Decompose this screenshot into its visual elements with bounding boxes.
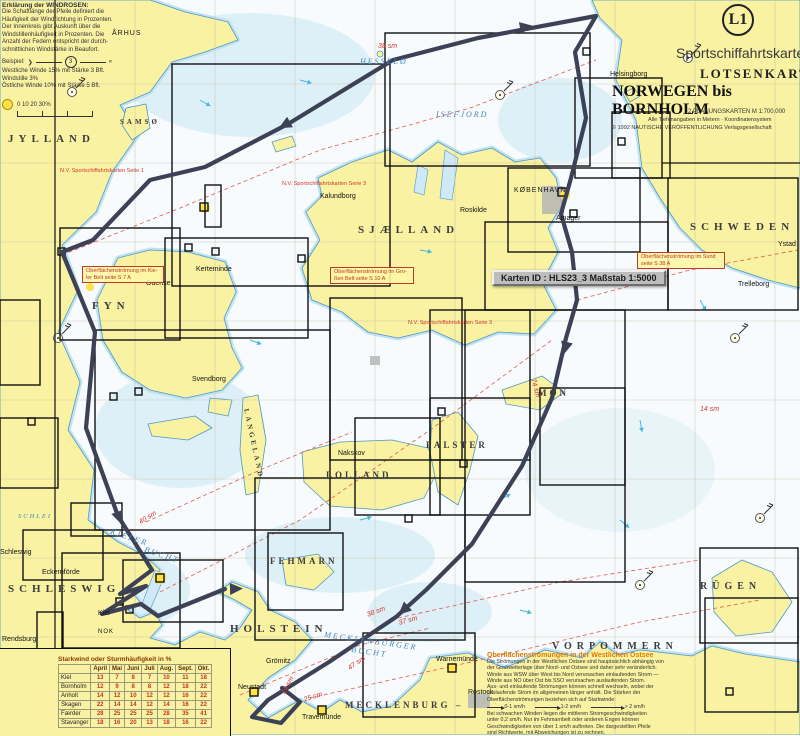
region-label-lolland: LOLLAND [326, 470, 392, 480]
town-label-kerteminde: Kerteminde [196, 266, 232, 273]
currents-note-body1: Die Strömungen in der Westlichen Ostsee … [487, 659, 729, 703]
region-label-moen: MØN [538, 388, 569, 398]
town-label-travemuende: Travemünde [302, 714, 341, 721]
storm-table-header-row: April Mai Juni Juli Aug. Sept. Okt. [59, 665, 212, 674]
currents-note-body2: Bei schwachen Winden liegen die mittlere… [487, 711, 729, 736]
storm-table-col: Aug. [157, 665, 175, 674]
windrose-example-arrow-icon: ❯ [28, 59, 33, 66]
region-label-mecklenburg: MECKLENBURG – [345, 700, 463, 710]
region-label-holstein: HOLSTEIN [230, 623, 327, 635]
windrose-example-shaft [80, 62, 106, 63]
current-speed-arrow-icon [487, 707, 501, 708]
current-speed-label: 1-2 sm/h [561, 704, 582, 710]
town-label-schleswig: Schleswig [0, 549, 32, 556]
series-ref-label: N.V. Sportschiffahrtskarten Seite 1 [60, 168, 144, 174]
town-label-amager: Amager [556, 215, 581, 222]
windrose-legend: Erklärung der WINDROSEN: Die Schaftlänge… [2, 2, 134, 117]
chart-copyright: © 1992 NAUTISCHE VERÖFFENTLICHUNG Verlag… [612, 125, 772, 131]
storm-table-row: Færder 2825 2525 2835 41 [59, 710, 212, 719]
town-label-kiel: Kiel [98, 610, 110, 617]
windrose-legend-body: Die Schaftlänge der Pfeile definiert die… [2, 9, 134, 54]
windrose-legend-title: Erklärung der WINDROSEN: [2, 2, 134, 9]
town-label-nok: NOK [98, 629, 114, 635]
region-label-samsoe: SAMSØ [120, 118, 160, 126]
chart-viewer-screen: { "header": { "badge": "L1", "series": "… [0, 0, 800, 735]
windrose-scale-labels: 0 10 20 30% [17, 102, 51, 108]
chart-product-name: LOTSENKARTEN [700, 66, 800, 82]
town-label-nakskov: Nakskov [338, 450, 365, 457]
storm-table-col: Okt. [195, 665, 212, 674]
distance-label: 38 sm [378, 43, 397, 50]
storm-table-col: Mai [110, 665, 125, 674]
chart-id-tooltip: Karten ID : HLS23_3 Maßstab 1:5000 [492, 270, 666, 286]
chart-subtitle-2: Alle Tiefenangaben in Metern · Koordinat… [648, 117, 772, 123]
water-label-isefjord: ISEFJORD [436, 110, 488, 119]
surface-currents-note: Oberflächenströmungen in der Westlichen … [487, 652, 729, 736]
region-label-sjaelland: SJÆLLAND [358, 224, 459, 236]
storm-table-col: Sept. [176, 665, 196, 674]
town-label-ystad: Ystad [778, 241, 796, 248]
region-label-schleswig: SCHLESWIG – [8, 583, 139, 595]
windrose-scale-circle-icon [2, 99, 13, 110]
current-note-kieler-belt: Oberflächenströmung im Kie- ler Belt sei… [82, 266, 164, 283]
town-label-trelleborg: Trelleborg [738, 281, 769, 288]
windrose-example-shaft [36, 62, 62, 63]
chart-series-name: Sportschiffahrtskarten [676, 45, 800, 61]
town-label-svendborg: Svendborg [192, 376, 226, 383]
windrose-example-feathers-icon: « [109, 59, 112, 65]
region-label-vorpommern: VORPOMMERN [552, 641, 678, 652]
windrose-legend-examples: Westliche Winde 15% mit Stärke 3 Bft. Wi… [2, 68, 134, 91]
storm-table-title: Starkwind oder Sturmhäufigkeit in % [58, 656, 212, 663]
storm-table-row: Anholt 1412 1012 1216 22 [59, 692, 212, 701]
town-label-koebenhavn: KØBENHAVN [514, 187, 566, 194]
storm-table-col: April [91, 665, 110, 674]
current-speed-arrow-icon [535, 707, 557, 708]
windrose-scale-ruler [17, 111, 93, 117]
storm-table-row: Bornholm 129 88 1218 22 [59, 683, 212, 692]
region-label-jylland: JYLLAND [8, 133, 95, 145]
storm-table-col: Juni [125, 665, 142, 674]
windrose-example-circle: 3 [65, 56, 77, 68]
distance-label: 14 sm [700, 406, 719, 413]
current-speed-label: 0-1 sm/h [504, 704, 525, 710]
region-label-fehmarn: FEHMARN [270, 556, 338, 566]
town-label-neustadt: Neustadt [238, 684, 266, 691]
series-ref-label: N.V. Sportschiffahrtskarten Serie 3 [408, 320, 492, 326]
town-label-groemitz: Grömitz [266, 658, 291, 665]
storm-table-corner [59, 665, 91, 674]
current-speed-arrow-icon [591, 707, 621, 708]
storm-table-row: Skagen 2214 1412 1416 22 [59, 701, 212, 710]
region-label-ruegen: RÜGEN [700, 581, 761, 592]
currents-note-title: Oberflächenströmungen in der Westlichen … [487, 652, 729, 659]
currents-legend: 0-1 sm/h 1-2 sm/h > 2 sm/h [487, 704, 729, 710]
storm-table-col: Juli [142, 665, 157, 674]
town-label-roskilde: Roskilde [460, 207, 487, 214]
storm-frequency-table: Starkwind oder Sturmhäufigkeit in % Apri… [58, 656, 212, 728]
town-label-eckernfoerde: Eckernförde [42, 569, 80, 576]
water-label-hesseloe: HESSELØ [360, 57, 408, 66]
series-ref-label: N.V. Sportschiffahrtskarten Serie 3 [282, 181, 366, 187]
current-speed-label: > 2 sm/h [625, 704, 645, 710]
region-label-fyn: FYN [92, 300, 130, 312]
town-label-warnemuende: Warnemünde [436, 656, 478, 663]
storm-table-row: Stavanger 1816 2013 1816 22 [59, 719, 212, 728]
current-note-sund: Oberflächenströmung im Sund seite S 38 A [637, 252, 725, 269]
water-label-schlei: SCHLEI [18, 513, 52, 520]
town-label-rendsburg: Rendsburg [2, 636, 36, 643]
region-label-falster: FALSTER [426, 440, 488, 450]
chart-subtitle-1: 2 PLANUNGSKARTEN M 1:700.000 [688, 109, 785, 115]
current-note-grosser-belt: Oberflächenströmung im Gro- ßen Belt sei… [330, 267, 414, 284]
town-label-helsingborg: Helsingborg [610, 71, 647, 78]
chart-series-badge: L1 [722, 4, 754, 36]
storm-table-row: Kiel 137 87 1011 18 [59, 674, 212, 683]
windrose-example-label: Beispiel: [2, 59, 25, 65]
region-label-schweden: SCHWEDEN [690, 221, 794, 233]
town-label-kalundborg: Kalundborg [320, 193, 356, 200]
